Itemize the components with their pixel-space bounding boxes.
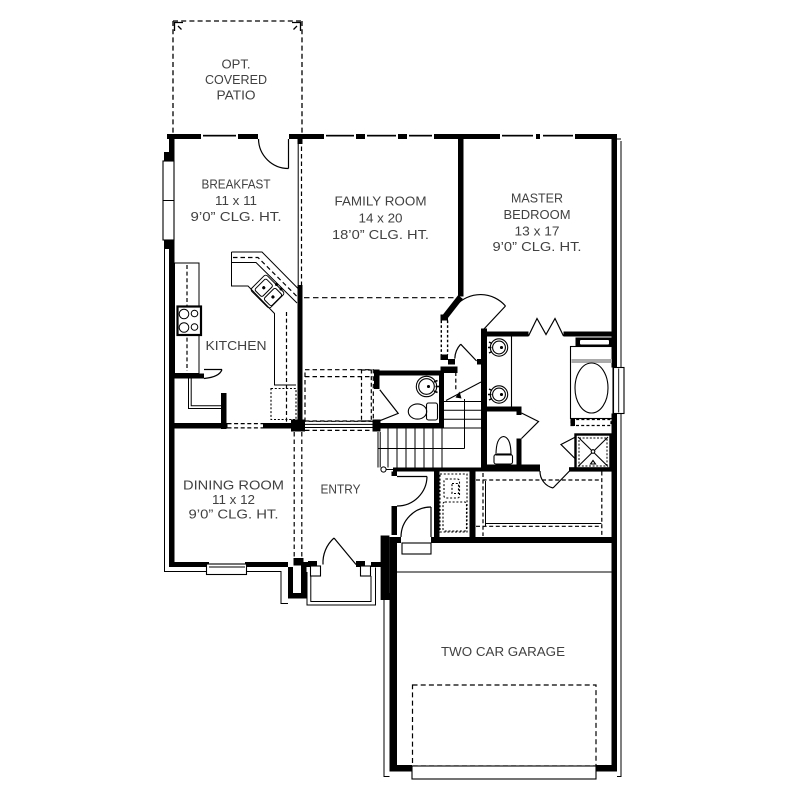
svg-text:FAMILY ROOM: FAMILY ROOM [335,194,427,209]
svg-text:ENTRY: ENTRY [321,482,361,497]
svg-text:KITCHEN: KITCHEN [206,338,267,353]
svg-text:TWO CAR GARAGE: TWO CAR GARAGE [441,644,565,659]
svg-text:BEDROOM: BEDROOM [504,207,571,222]
svg-text:COVERED: COVERED [205,72,267,87]
svg-text:PATIO: PATIO [217,88,256,103]
svg-text:DINING ROOM: DINING ROOM [183,478,284,493]
svg-text:9’0” CLG. HT.: 9’0” CLG. HT. [493,239,582,254]
svg-text:MASTER: MASTER [511,191,563,206]
svg-text:9’0” CLG. HT.: 9’0” CLG. HT. [189,507,279,522]
svg-text:13 x 17: 13 x 17 [515,224,560,239]
svg-text:11 x 12: 11 x 12 [212,492,255,507]
svg-text:14 x 20: 14 x 20 [359,211,403,226]
svg-text:OPT.: OPT. [222,57,251,72]
svg-text:11 x 11: 11 x 11 [215,193,257,208]
svg-text:9’0” CLG. HT.: 9’0” CLG. HT. [191,209,282,224]
svg-text:BREAKFAST: BREAKFAST [202,177,271,192]
svg-text:18’0” CLG. HT.: 18’0” CLG. HT. [332,227,429,242]
